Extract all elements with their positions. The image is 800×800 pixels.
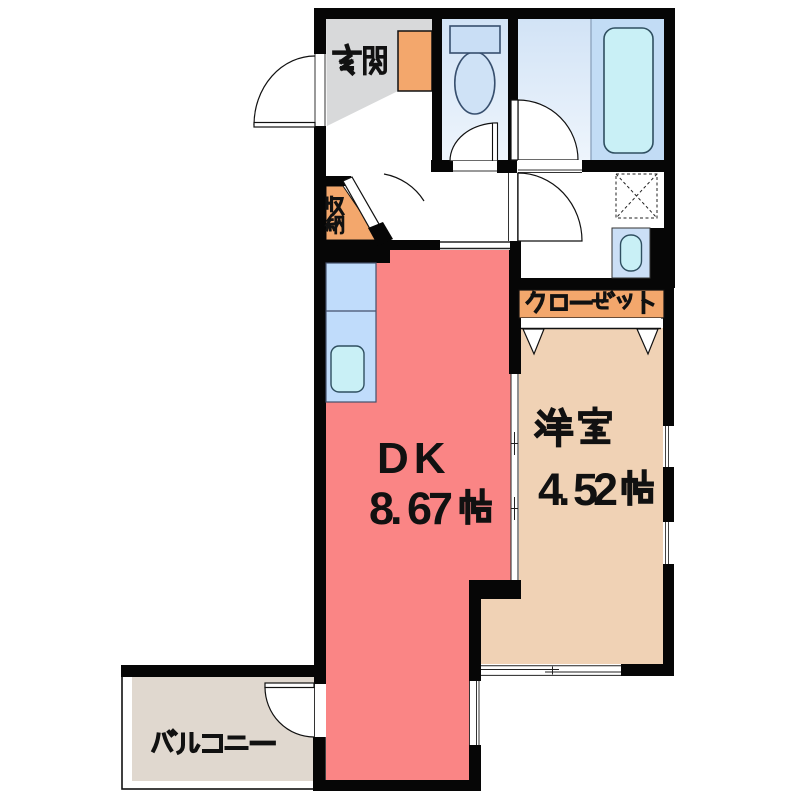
- svg-text:DK: DK: [377, 434, 451, 483]
- svg-text:8. 67: 8. 67: [369, 483, 453, 534]
- svg-text:4. 52: 4. 52: [538, 464, 618, 515]
